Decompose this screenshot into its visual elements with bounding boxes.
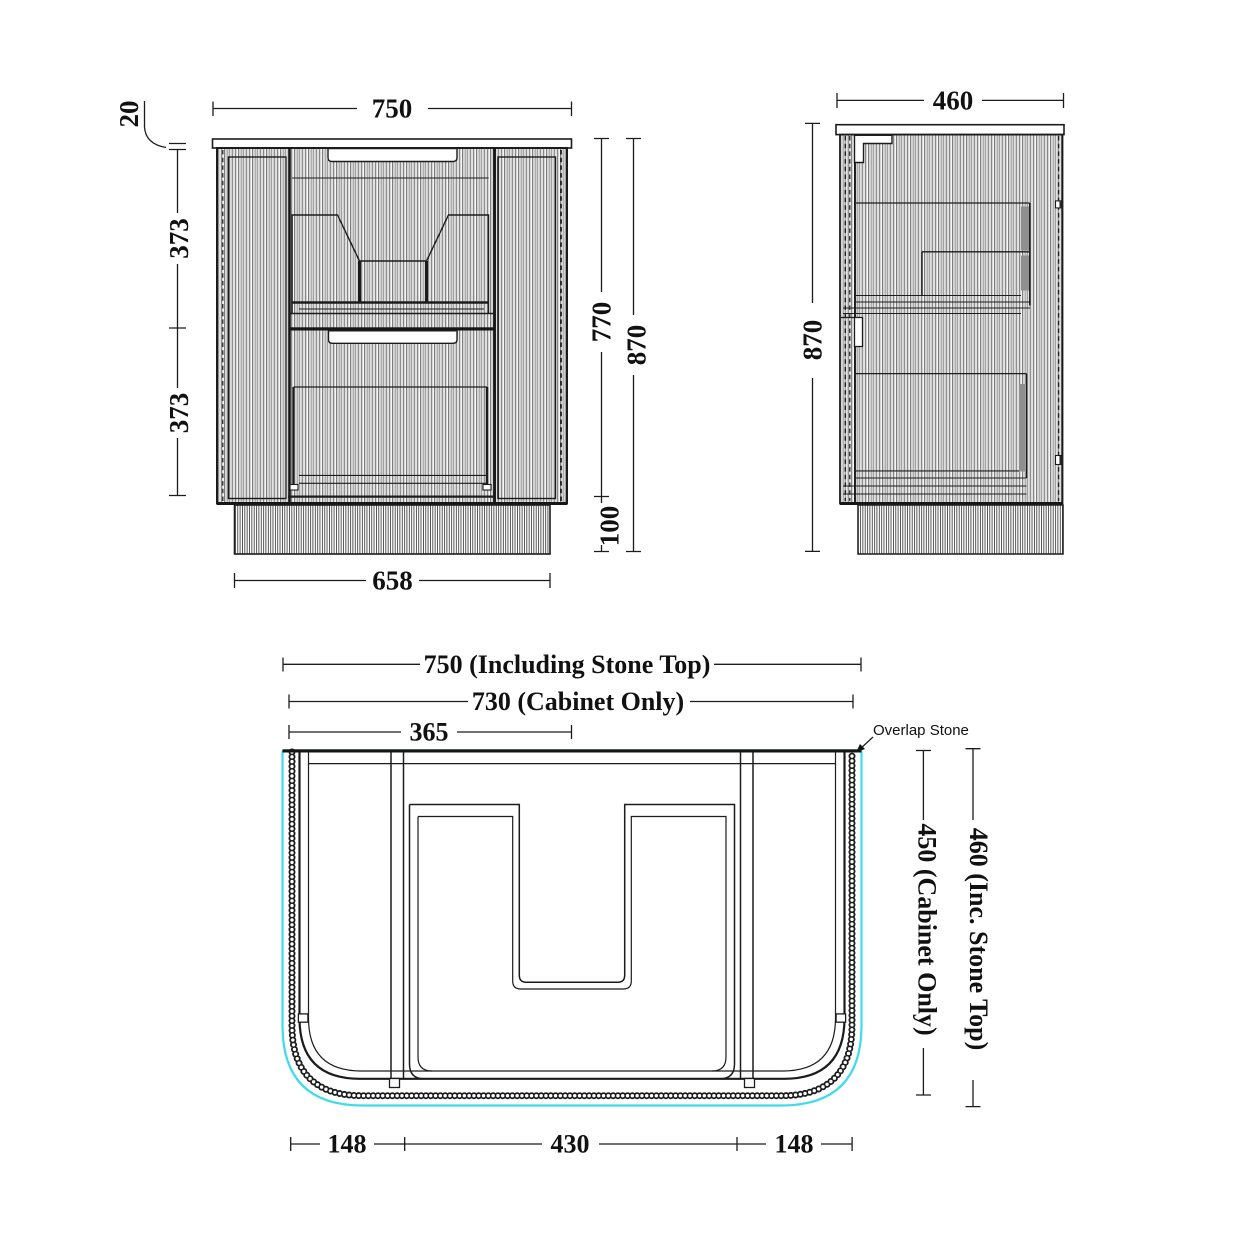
svg-text:460 (Inc. Stone Top): 460 (Inc. Stone Top) <box>964 828 993 1051</box>
svg-text:750 (Including Stone Top): 750 (Including Stone Top) <box>424 650 711 679</box>
svg-text:148: 148 <box>328 1130 367 1159</box>
svg-text:870: 870 <box>798 320 828 361</box>
svg-text:730 (Cabinet Only): 730 (Cabinet Only) <box>472 687 684 716</box>
svg-text:460: 460 <box>933 86 974 116</box>
svg-text:430: 430 <box>551 1130 590 1159</box>
svg-text:373: 373 <box>164 218 194 259</box>
svg-text:373: 373 <box>164 393 194 434</box>
svg-text:148: 148 <box>775 1130 814 1159</box>
svg-text:365: 365 <box>410 718 449 747</box>
svg-text:750: 750 <box>372 94 413 124</box>
svg-text:870: 870 <box>622 325 652 366</box>
svg-text:450 (Cabinet Only): 450 (Cabinet Only) <box>913 823 942 1035</box>
svg-text:100: 100 <box>595 506 625 547</box>
svg-text:20: 20 <box>114 101 144 128</box>
svg-text:770: 770 <box>587 302 617 343</box>
svg-text:658: 658 <box>372 566 413 596</box>
svg-text:Overlap Stone: Overlap Stone <box>873 722 969 739</box>
